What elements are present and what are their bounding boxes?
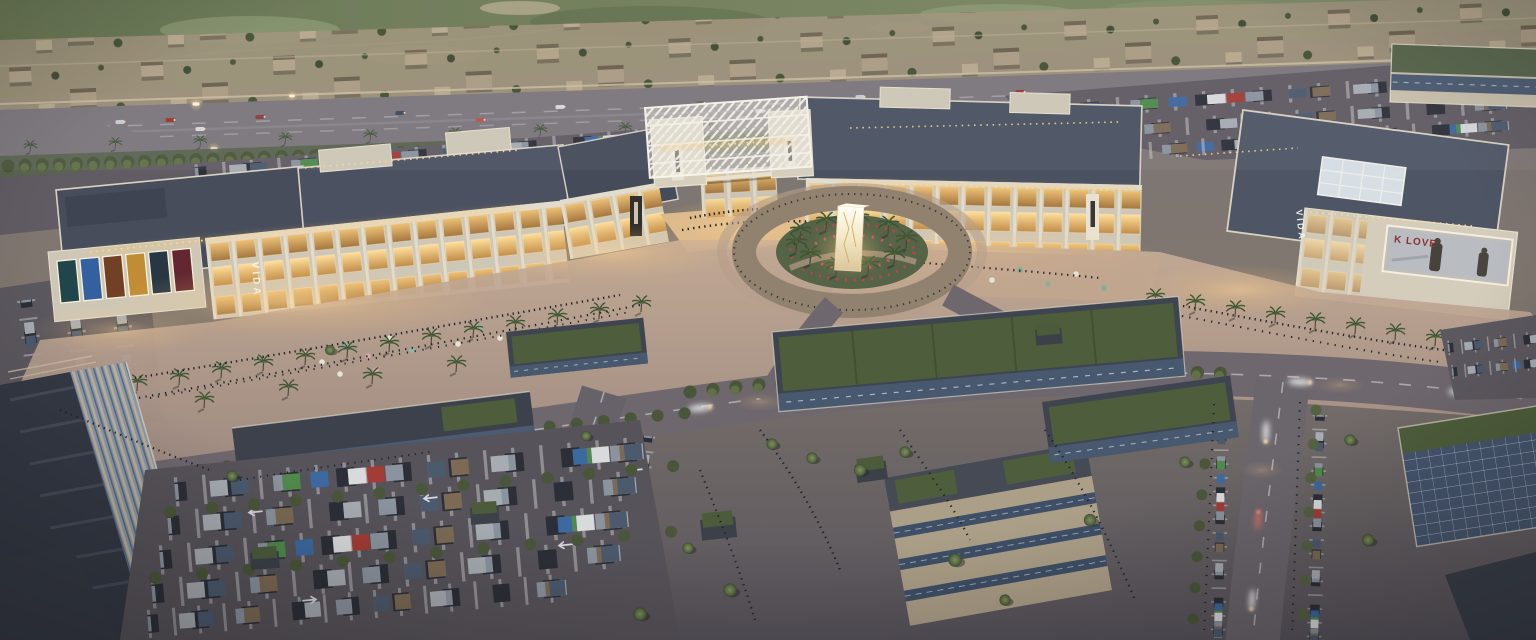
vignette <box>0 0 1536 640</box>
aerial-render: Aerial dusk rendering of a shopping mall… <box>0 0 1536 640</box>
scene-canvas: K LOVE VIDA VIDA <box>0 0 1536 640</box>
